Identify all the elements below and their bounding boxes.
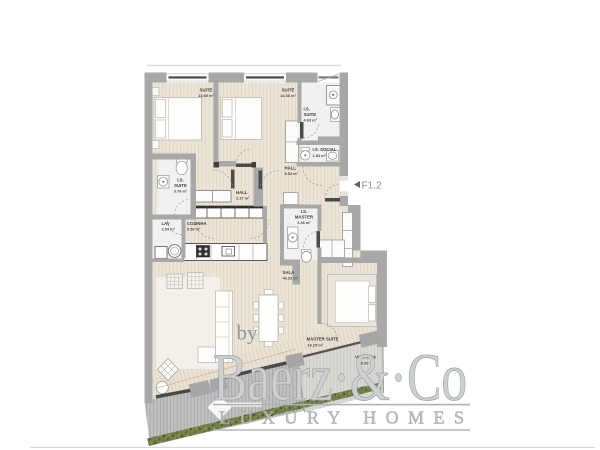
- svg-text:F1.2: F1.2: [362, 180, 382, 191]
- svg-text:2.54 m²: 2.54 m²: [162, 227, 176, 232]
- svg-text:1.84 m²: 1.84 m²: [313, 153, 327, 158]
- svg-text:HALL: HALL: [285, 166, 297, 171]
- svg-text:3.76 m²: 3.76 m²: [174, 189, 188, 194]
- svg-text:COZINHA: COZINHA: [187, 221, 207, 226]
- svg-text:4.63 m²: 4.63 m²: [304, 118, 318, 123]
- svg-text:SUITE: SUITE: [174, 183, 187, 188]
- svg-text:SALA: SALA: [283, 270, 295, 275]
- svg-text:HALL: HALL: [236, 190, 248, 195]
- svg-text:SUITE: SUITE: [304, 112, 317, 117]
- svg-text:SUITE: SUITE: [282, 88, 295, 93]
- svg-text:9.50 m²: 9.50 m²: [187, 227, 201, 232]
- svg-text:3.46 m²: 3.46 m²: [297, 220, 311, 225]
- svg-text:8.52 m²: 8.52 m²: [285, 171, 299, 176]
- svg-text:13.65 m²: 13.65 m²: [198, 93, 214, 98]
- svg-text:I.S.: I.S.: [304, 107, 310, 112]
- svg-text:I.S. SOCIAL: I.S. SOCIAL: [313, 147, 337, 152]
- svg-text:46.32 m²: 46.32 m²: [283, 276, 299, 281]
- svg-text:2.17 m²: 2.17 m²: [236, 196, 250, 201]
- svg-text:LAV: LAV: [162, 221, 170, 226]
- svg-text:MASTER: MASTER: [295, 215, 314, 220]
- svg-text:I.S.: I.S.: [177, 178, 183, 183]
- svg-text:14.38 m²: 14.38 m²: [280, 93, 296, 98]
- svg-text:SUITE: SUITE: [200, 88, 213, 93]
- svg-text:I.S.: I.S.: [301, 209, 307, 214]
